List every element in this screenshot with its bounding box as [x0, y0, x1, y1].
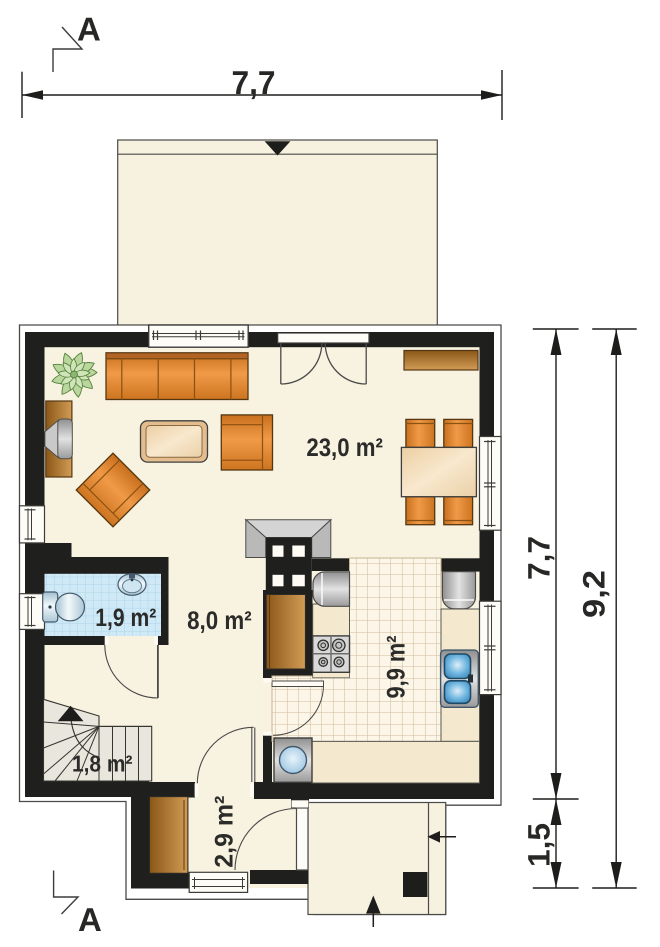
svg-text:8,0 m²: 8,0 m² — [187, 607, 252, 635]
svg-text:7,7: 7,7 — [232, 64, 276, 101]
svg-text:1,8 m²: 1,8 m² — [72, 751, 133, 777]
svg-text:A: A — [77, 11, 101, 48]
svg-text:7,7: 7,7 — [522, 536, 557, 580]
svg-text:2,9 m²: 2,9 m² — [211, 796, 239, 868]
svg-text:23,0 m²: 23,0 m² — [306, 434, 383, 462]
svg-text:9,2: 9,2 — [577, 570, 612, 618]
svg-text:1,5: 1,5 — [522, 823, 557, 867]
svg-text:A: A — [78, 901, 102, 938]
svg-text:1,9 m²: 1,9 m² — [95, 604, 156, 632]
svg-text:9,9 m²: 9,9 m² — [383, 636, 411, 699]
